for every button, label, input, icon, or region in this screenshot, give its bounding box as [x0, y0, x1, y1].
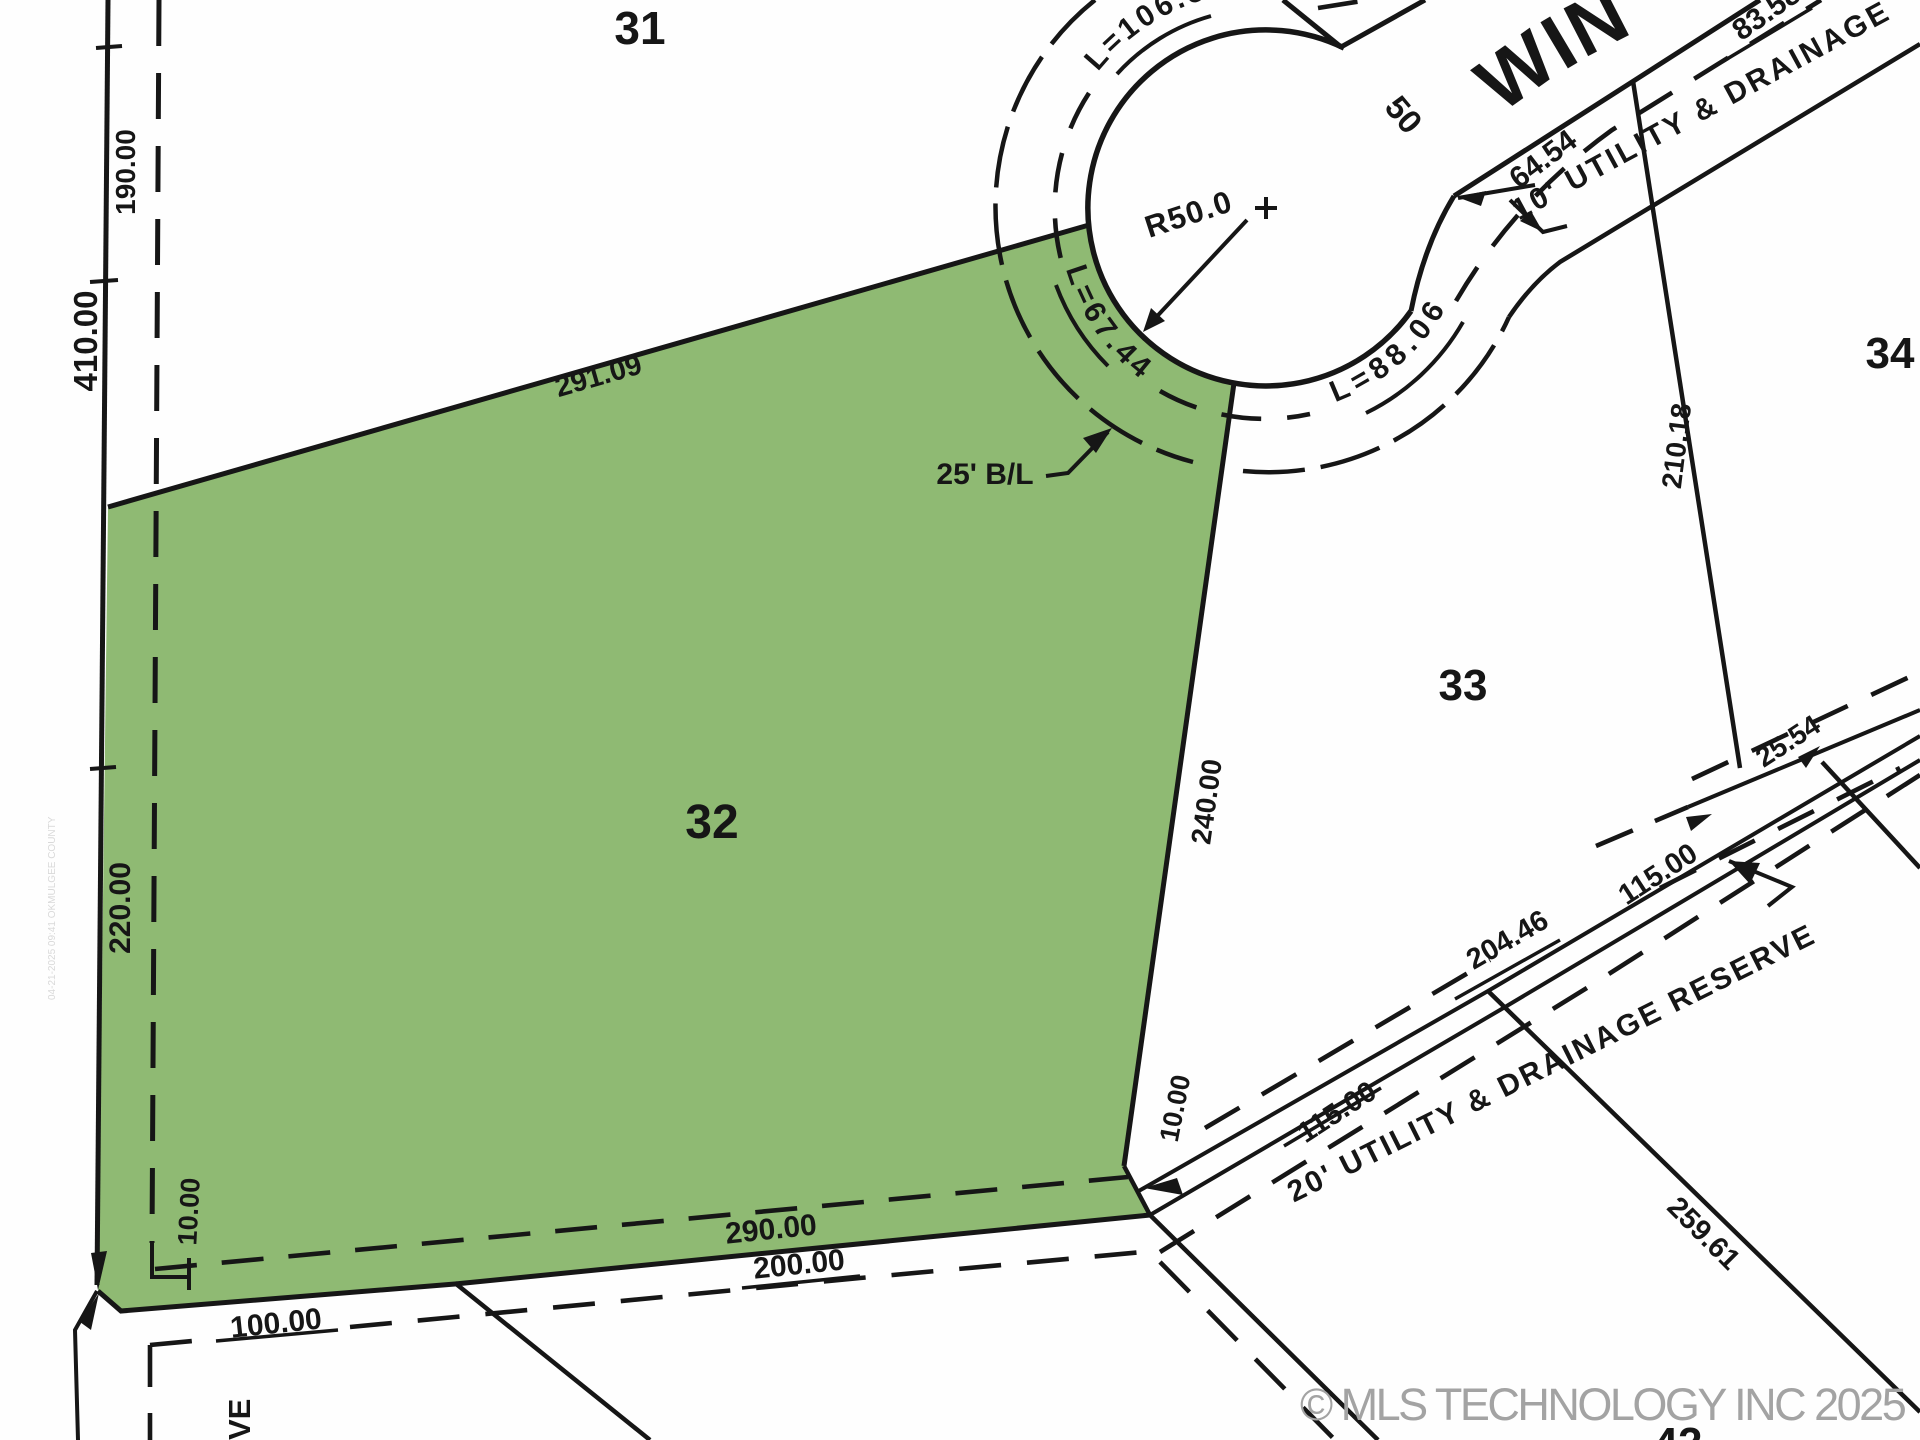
svg-text:34: 34	[1866, 329, 1915, 378]
svg-text:VE: VE	[222, 1399, 257, 1440]
svg-text:© MLS TECHNOLOGY INC 2025: © MLS TECHNOLOGY INC 2025	[1300, 1379, 1906, 1430]
svg-text:33: 33	[1439, 661, 1488, 710]
svg-text:32: 32	[685, 796, 738, 849]
svg-text:410.00: 410.00	[67, 291, 104, 392]
svg-text:220.00: 220.00	[104, 862, 137, 954]
svg-text:190.00: 190.00	[110, 129, 141, 215]
svg-text:31: 31	[614, 2, 665, 54]
svg-text:10.00: 10.00	[172, 1177, 205, 1246]
svg-text:25' B/L: 25' B/L	[936, 458, 1033, 491]
svg-text:04-21-2025 09:41 OKMULGEE COUN: 04-21-2025 09:41 OKMULGEE COUNTY	[47, 816, 58, 1000]
